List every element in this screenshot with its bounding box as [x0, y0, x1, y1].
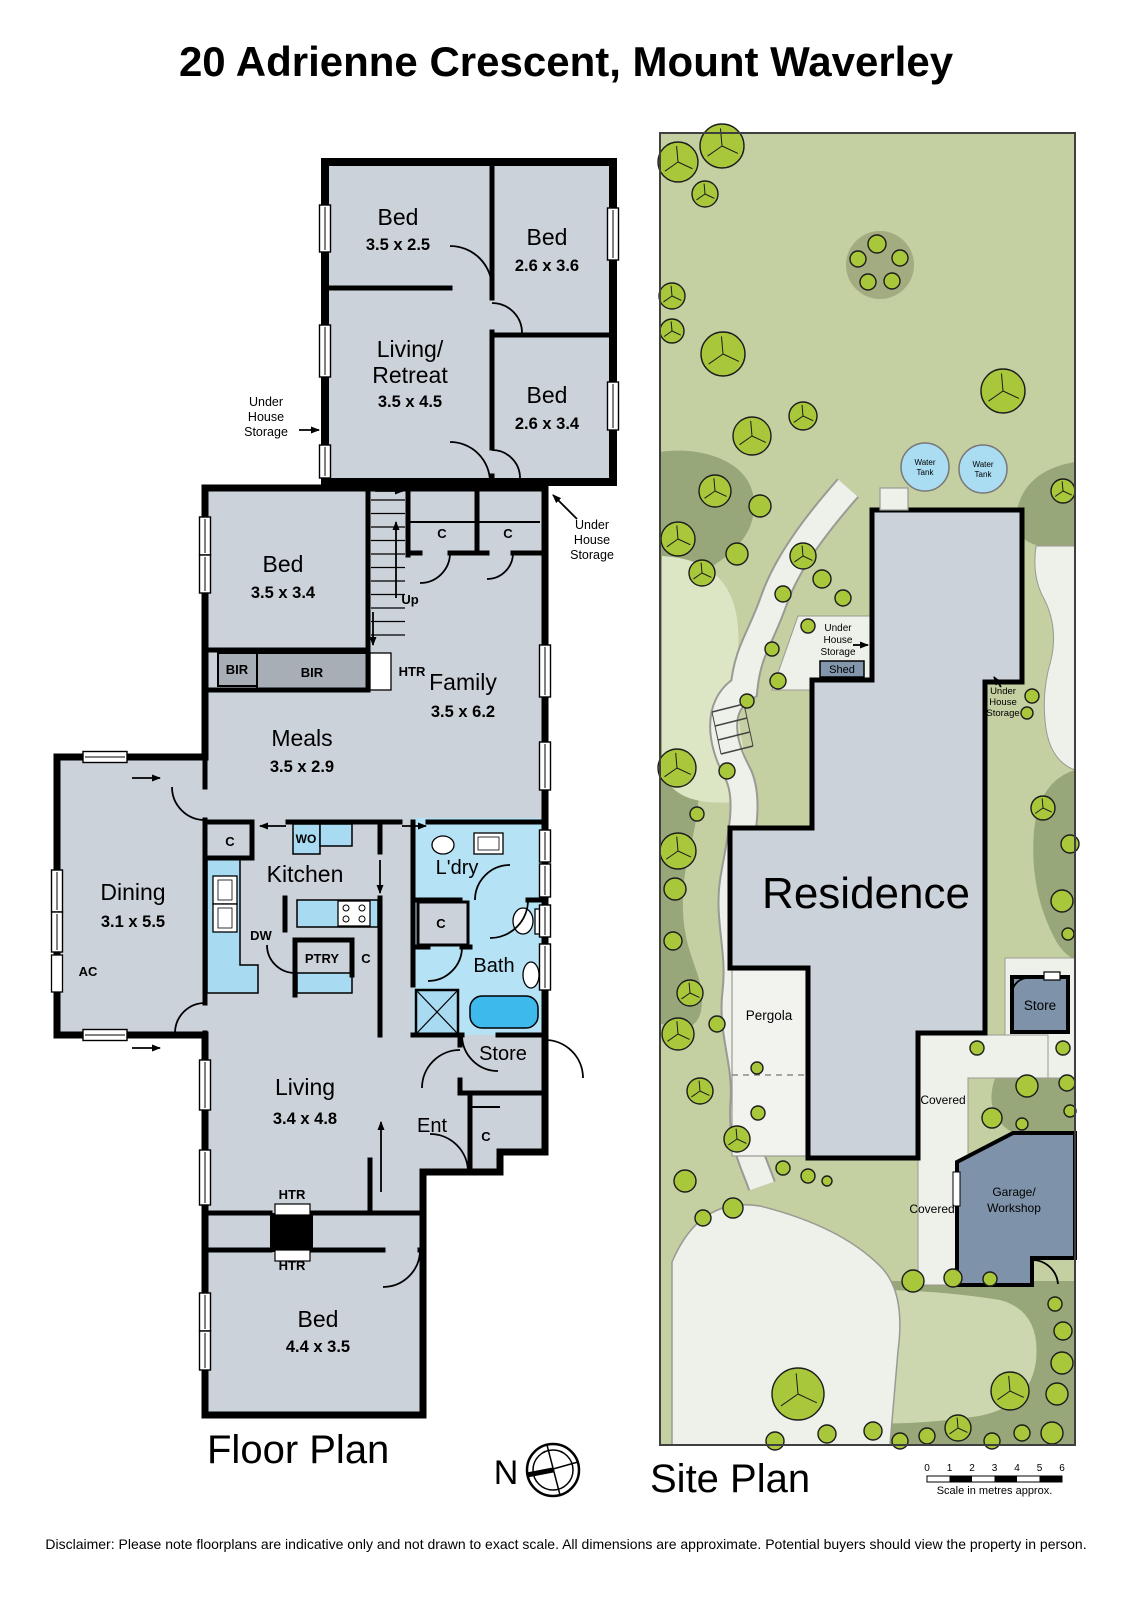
svg-text:House: House [989, 697, 1016, 708]
entry-label: Ent [417, 1115, 447, 1137]
bed3-label: Bed [527, 382, 568, 408]
laundry-label: L'dry [436, 857, 479, 879]
tree [864, 1422, 882, 1440]
tree [709, 1016, 725, 1032]
shed-label: Shed [829, 664, 855, 676]
tree [740, 694, 754, 708]
tree [1054, 1322, 1072, 1340]
tree [1046, 1383, 1068, 1405]
garage-label-line2: Workshop [987, 1201, 1041, 1215]
tree [1025, 689, 1039, 703]
tree [850, 251, 866, 267]
svg-text:Storage: Storage [820, 647, 855, 658]
property-floorplan-page: 20 Adrienne Crescent, Mount Waverley [0, 0, 1133, 1600]
closet2-label: C [503, 526, 513, 541]
tree [1059, 1075, 1075, 1091]
laundry-sink [432, 836, 454, 854]
tree [766, 1432, 784, 1450]
scale-seg-1 [950, 1476, 973, 1482]
tree [770, 673, 786, 689]
tree [1061, 835, 1079, 853]
covered-label-1: Covered [920, 1093, 965, 1107]
tree [983, 1272, 997, 1286]
tree [970, 1041, 984, 1055]
tree [860, 274, 876, 290]
svg-text:Under: Under [249, 395, 283, 409]
ac-unit [52, 955, 63, 992]
tree [1051, 1352, 1073, 1374]
tree [690, 807, 704, 821]
wall-oven-label: WO [296, 832, 317, 846]
tree [1021, 707, 1033, 719]
htr-bed-label: HTR [279, 1258, 306, 1273]
scale-tick-5: 5 [1037, 1463, 1043, 1474]
svg-text:Storage: Storage [986, 708, 1019, 719]
water-tank-1-label-line2: Tank [917, 468, 935, 477]
pointer-arrow [553, 495, 577, 519]
scale-tick-6: 6 [1059, 1463, 1065, 1474]
tree [1014, 1425, 1030, 1441]
scale-tick-1: 1 [947, 1463, 953, 1474]
tree [726, 543, 748, 565]
tree [1051, 890, 1073, 912]
bir2-label: BIR [301, 665, 324, 680]
living-retreat-label-2: Retreat [372, 362, 448, 388]
scale-caption: Scale in metres approx. [937, 1485, 1053, 1497]
tree [944, 1269, 962, 1287]
tree [723, 1198, 743, 1218]
htr-living-label: HTR [279, 1187, 306, 1202]
scale-bar: 0 1 2 3 4 5 6 Scale in metres approx. [924, 1463, 1065, 1497]
upper-unit-fill [325, 162, 613, 482]
pantry-closet-label: C [361, 951, 371, 966]
water-tank-1-label-line1: Water [914, 458, 935, 467]
entry-closet-label: C [481, 1129, 491, 1144]
tree [919, 1428, 935, 1444]
up-label: Up [401, 592, 418, 607]
bed1-label: Bed [378, 204, 419, 230]
tree [765, 642, 779, 656]
bed4-dims: 3.5 x 3.4 [251, 584, 316, 602]
page-title: 20 Adrienne Crescent, Mount Waverley [179, 38, 954, 85]
tree [892, 250, 908, 266]
tree [1056, 1041, 1070, 1055]
bath-label: Bath [473, 955, 514, 977]
floor-under-house-storage-left: Under House Storage [244, 395, 319, 439]
tree [884, 273, 900, 289]
tree [982, 1108, 1002, 1128]
compass-needle [527, 1470, 553, 1475]
family-label: Family [429, 669, 497, 695]
meals-label: Meals [271, 725, 332, 751]
bed4-label: Bed [263, 551, 304, 577]
garage-label-line1: Garage/ [992, 1185, 1036, 1199]
plan-canvas: 20 Adrienne Crescent, Mount Waverley [0, 0, 1133, 1600]
tree [892, 1433, 908, 1449]
tree [801, 1169, 815, 1183]
tree [835, 590, 851, 606]
dishwasher-label: DW [250, 928, 272, 943]
kitchen-closet-label: C [225, 834, 235, 849]
floor-plan-caption: Floor Plan [207, 1428, 389, 1472]
tree [749, 495, 771, 517]
bir1-label: BIR [226, 662, 249, 677]
utility-box [880, 488, 908, 510]
tree [801, 619, 815, 633]
tree [751, 1062, 763, 1074]
tree [1048, 1297, 1062, 1311]
site-store-label: Store [1024, 998, 1056, 1013]
store-label: Store [479, 1043, 527, 1065]
svg-text:House: House [248, 410, 284, 424]
bed2-label: Bed [527, 224, 568, 250]
closet1-label: C [437, 526, 447, 541]
water-tank-1 [901, 443, 949, 491]
htr-family-label: HTR [399, 664, 426, 679]
dining-dims: 3.1 x 5.5 [101, 913, 165, 931]
kitchen-bench-2 [320, 824, 352, 846]
site-plan: Water Tank Water Tank Residence Pergola … [658, 124, 1079, 1450]
hall-closet-label: C [436, 916, 446, 931]
tree [664, 932, 682, 950]
floor-under-house-storage-right: Under House Storage [553, 495, 614, 562]
water-tank-2 [959, 445, 1007, 493]
living-dims: 3.4 x 4.8 [273, 1110, 337, 1128]
svg-text:Under: Under [824, 623, 852, 634]
north-label: N [494, 1454, 519, 1492]
living-retreat-label-1: Living/ [377, 336, 444, 362]
site-plan-caption: Site Plan [650, 1457, 810, 1501]
water-tank-2-label-line2: Tank [975, 470, 993, 479]
tree [776, 1161, 790, 1175]
scale-tick-2: 2 [969, 1463, 975, 1474]
scale-seg-3 [995, 1476, 1018, 1482]
kitchen-label: Kitchen [267, 861, 344, 887]
tree [664, 878, 686, 900]
tree [1041, 1422, 1063, 1444]
tree [695, 1210, 711, 1226]
pantry-label: PTRY [305, 951, 340, 966]
cooktop [338, 901, 370, 926]
tree [751, 1106, 765, 1120]
meals-dims: 3.5 x 2.9 [270, 758, 334, 776]
svg-text:Under: Under [575, 518, 609, 532]
pantry-shelf [297, 973, 352, 993]
dining-label: Dining [100, 879, 165, 905]
residence-label: Residence [762, 869, 970, 918]
tree [984, 1433, 1000, 1449]
floor-plan: Under House Storage Under House Storage … [52, 162, 619, 1415]
tree [1062, 928, 1074, 940]
living-label: Living [275, 1074, 335, 1100]
water-tank-2-label-line1: Water [972, 460, 993, 469]
tree [902, 1270, 924, 1292]
heater-box-living [275, 1204, 310, 1215]
svg-text:Storage: Storage [570, 548, 614, 562]
svg-text:Under: Under [990, 686, 1016, 697]
ac-label: AC [79, 964, 98, 979]
scale-tick-4: 4 [1014, 1463, 1020, 1474]
fireplace [270, 1213, 313, 1252]
heater-box-family [370, 653, 391, 690]
living-retreat-dims: 3.5 x 4.5 [378, 393, 442, 411]
pergola-label: Pergola [746, 1008, 793, 1023]
bathtub [470, 996, 538, 1028]
tree [674, 1170, 696, 1192]
tree [775, 586, 791, 602]
tree [813, 570, 831, 588]
svg-text:Storage: Storage [244, 425, 288, 439]
bed1-dims: 3.5 x 2.5 [366, 236, 430, 254]
tree [822, 1176, 832, 1186]
family-dims: 3.5 x 6.2 [431, 703, 495, 721]
shower [416, 990, 458, 1034]
scale-tick-3: 3 [992, 1463, 998, 1474]
tree [719, 763, 735, 779]
disclaimer: Disclaimer: Please note floorplans are i… [45, 1536, 1086, 1552]
tree [1016, 1118, 1028, 1130]
svg-text:House: House [824, 635, 853, 646]
tree [818, 1425, 836, 1443]
covered-label-2: Covered [909, 1202, 954, 1216]
bath-basin [523, 962, 539, 988]
bed5-dims: 4.4 x 3.5 [286, 1338, 350, 1356]
bed2-dims: 2.6 x 3.6 [515, 257, 579, 275]
compass: N [494, 1444, 579, 1496]
tree [1016, 1075, 1038, 1097]
bed5-label: Bed [298, 1306, 339, 1332]
bed3-dims: 2.6 x 3.4 [515, 415, 580, 433]
tree [868, 235, 886, 253]
svg-text:House: House [574, 533, 610, 547]
scale-tick-0: 0 [924, 1463, 930, 1474]
scale-seg-5 [1040, 1476, 1063, 1482]
